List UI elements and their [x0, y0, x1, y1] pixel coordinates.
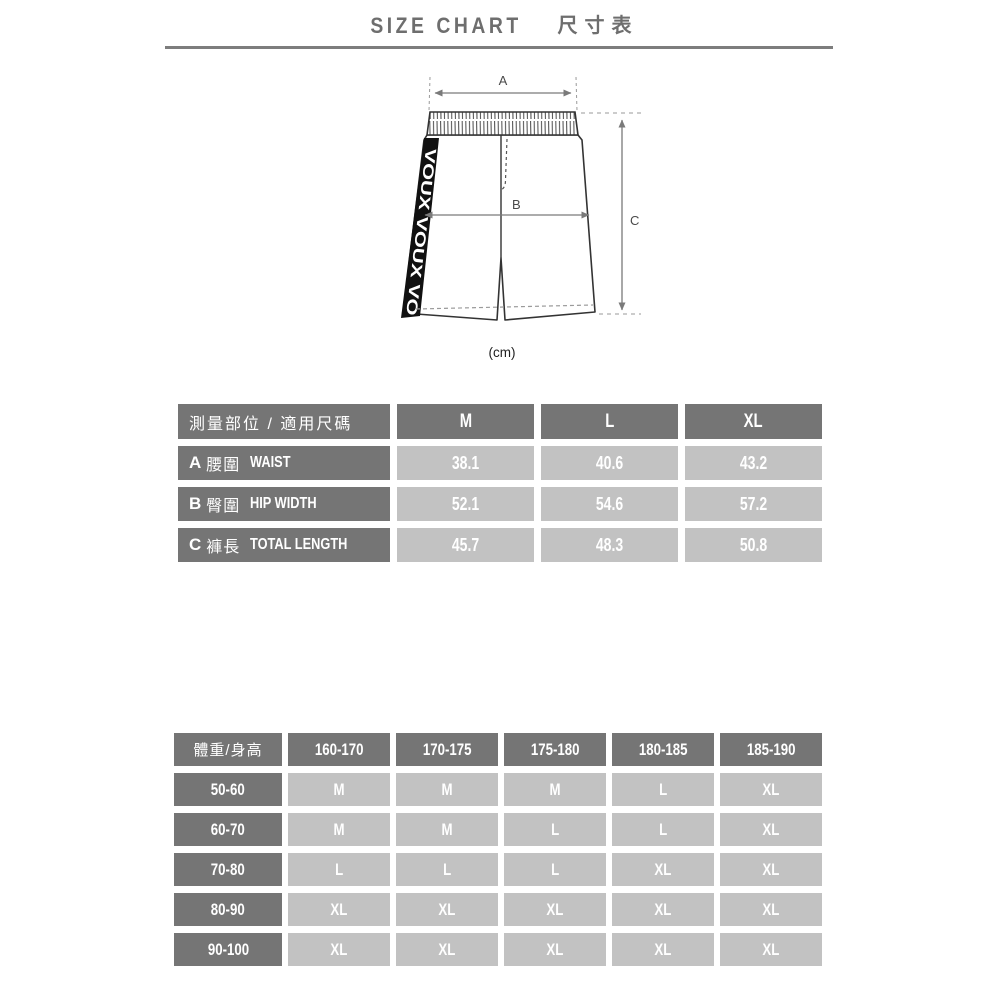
row-name-english: WAIST [250, 454, 291, 472]
fit-cell: L [504, 813, 606, 846]
height-header-170-175: 170-175 [396, 733, 498, 766]
title-english: SIZE CHART [370, 14, 521, 38]
hip-value-l: 54.6 [541, 487, 678, 521]
weight-header-50-60: 50-60 [174, 773, 282, 806]
fit-cell: XL [396, 933, 498, 966]
row-label-waist: A 腰圍 WAIST [178, 446, 390, 480]
page-title: SIZE CHART尺寸表 [165, 14, 833, 38]
measure-a-extension-left [429, 77, 430, 111]
fit-cell: XL [612, 893, 714, 926]
unit-label: (cm) [489, 345, 516, 360]
waistband [427, 112, 578, 135]
measure-c-label: C [630, 213, 639, 228]
fit-cell: XL [396, 893, 498, 926]
waist-value-m: 38.1 [397, 446, 534, 480]
height-header-160-170: 160-170 [288, 733, 390, 766]
measure-table-corner-header: 測量部位 / 適用尺碼 [178, 404, 390, 439]
size-header-l: L [541, 404, 678, 439]
row-name-chinese: 臀圍 [206, 492, 240, 516]
fit-cell: XL [288, 893, 390, 926]
row-name-chinese: 腰圍 [206, 451, 240, 475]
hip-value-m: 52.1 [397, 487, 534, 521]
page-header: SIZE CHART尺寸表 [165, 14, 833, 49]
fit-cell: M [288, 813, 390, 846]
fit-cell: L [504, 853, 606, 886]
height-header-175-180: 175-180 [504, 733, 606, 766]
measure-b-label: B [512, 197, 521, 212]
size-header-m: M [397, 404, 534, 439]
row-key: A [189, 453, 201, 473]
row-label-hip-width: B 臀圍 HIP WIDTH [178, 487, 390, 521]
length-value-l: 48.3 [541, 528, 678, 562]
length-value-m: 45.7 [397, 528, 534, 562]
fit-cell: L [612, 773, 714, 806]
fit-cell: XL [720, 813, 822, 846]
fit-cell: XL [720, 853, 822, 886]
shorts-diagram: VOUX VOUX VO A B C (cm) [385, 60, 685, 370]
fit-cell: XL [612, 853, 714, 886]
fit-cell: M [288, 773, 390, 806]
measure-a-label: A [499, 73, 508, 88]
fit-cell: XL [720, 893, 822, 926]
fit-cell: M [396, 813, 498, 846]
row-key: C [189, 535, 201, 555]
fit-cell: XL [720, 773, 822, 806]
measure-a-extension-right [576, 77, 577, 111]
measurement-table: 測量部位 / 適用尺碼 M L XL A 腰圍 WAIST 38.1 40.6 … [178, 404, 822, 562]
height-header-180-185: 180-185 [612, 733, 714, 766]
fit-cell: XL [504, 933, 606, 966]
fit-cell: XL [504, 893, 606, 926]
height-header-185-190: 185-190 [720, 733, 822, 766]
fit-cell: XL [612, 933, 714, 966]
weight-header-80-90: 80-90 [174, 893, 282, 926]
weight-header-60-70: 60-70 [174, 813, 282, 846]
fit-cell: L [288, 853, 390, 886]
row-name-chinese: 褲長 [206, 533, 240, 557]
fit-cell: L [396, 853, 498, 886]
weight-header-70-80: 70-80 [174, 853, 282, 886]
row-name-english: TOTAL LENGTH [250, 536, 347, 554]
fit-cell: XL [720, 933, 822, 966]
fit-cell: XL [288, 933, 390, 966]
size-header-xl: XL [685, 404, 822, 439]
fit-matrix-table: 體重/身高 160-170 170-175 175-180 180-185 18… [174, 733, 822, 966]
size-chart-page: SIZE CHART尺寸表 VOUX VOUX VO A [0, 0, 999, 999]
weight-header-90-100: 90-100 [174, 933, 282, 966]
waist-value-l: 40.6 [541, 446, 678, 480]
hip-value-xl: 57.2 [685, 487, 822, 521]
row-label-total-length: C 褲長 TOTAL LENGTH [178, 528, 390, 562]
length-value-xl: 50.8 [685, 528, 822, 562]
waist-value-xl: 43.2 [685, 446, 822, 480]
fit-cell: L [612, 813, 714, 846]
fit-table-corner-header: 體重/身高 [174, 733, 282, 766]
row-key: B [189, 494, 201, 514]
fit-cell: M [504, 773, 606, 806]
title-chinese: 尺寸表 [558, 15, 639, 37]
row-name-english: HIP WIDTH [250, 495, 317, 513]
fit-cell: M [396, 773, 498, 806]
